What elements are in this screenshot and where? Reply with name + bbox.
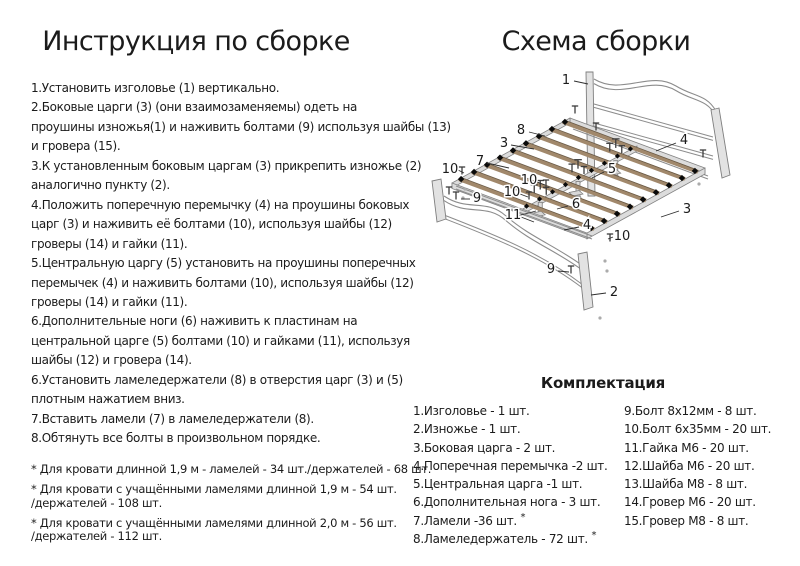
parts-item: 2.Изножье - 1 шт. bbox=[413, 420, 608, 438]
instruction-line: плотным нажатием вниз. bbox=[31, 390, 451, 409]
instruction-line: 8.Обтянуть все болты в произвольном поря… bbox=[31, 429, 451, 448]
instruction-line: 1.Установить изголовье (1) вертикально. bbox=[31, 79, 451, 98]
footboard-right-post bbox=[578, 252, 593, 310]
parts-item: 5.Центральная царга -1 шт. bbox=[413, 475, 608, 493]
footnote-line: /держателей - 108 шт. bbox=[31, 497, 431, 511]
callout-label: 11 bbox=[505, 208, 522, 223]
headboard-top-rail bbox=[594, 84, 716, 116]
footnote-line: * Для кровати с учащёнными ламелями длин… bbox=[31, 517, 431, 531]
footnote: * Для кровати с учащёнными ламелями длин… bbox=[31, 517, 431, 544]
parts-item: 4.Поперечная перемычка -2 шт. bbox=[413, 457, 608, 475]
instruction-line: шайбы (12) и гровера (14). bbox=[31, 351, 451, 370]
instructions-list: 1.Установить изголовье (1) вертикально.2… bbox=[31, 79, 451, 449]
footnotes: * Для кровати длинной 1,9 м - ламелей - … bbox=[31, 463, 431, 550]
callout-label: 4 bbox=[583, 218, 591, 233]
headboard-right-post bbox=[711, 108, 730, 178]
hole-dot bbox=[603, 259, 606, 262]
instruction-line: гроверы (14) и гайки (11). bbox=[31, 293, 451, 312]
callout-label: 4 bbox=[680, 133, 688, 148]
assembly-instruction-sheet: Инструкция по сборке Схема сборки 1.Уста… bbox=[0, 0, 800, 566]
headboard-top-rail bbox=[594, 79, 716, 111]
callout-label: 9 bbox=[473, 191, 481, 206]
instruction-line: царг (3) и наживить её болтами (10), исп… bbox=[31, 215, 451, 234]
hole-dot bbox=[463, 187, 466, 190]
callout-label: 9 bbox=[547, 262, 555, 277]
instruction-line: центральной царге (5) болтами (10) и гай… bbox=[31, 332, 451, 351]
parts-list-col1: 1.Изголовье - 1 шт.2.Изножье - 1 шт.3.Бо… bbox=[413, 402, 608, 548]
instruction-line: 3.К установленным боковым царгам (3) при… bbox=[31, 157, 451, 176]
bed-assembly-diagram: 1837105410109611431092 bbox=[420, 55, 800, 347]
footnote-line: * Для кровати длинной 1,9 м - ламелей - … bbox=[31, 463, 431, 477]
instruction-line: и гровера (15). bbox=[31, 137, 451, 156]
instruction-line: 6.Дополнительные ноги (6) наживить к пла… bbox=[31, 312, 451, 331]
callout-leader bbox=[591, 293, 606, 295]
callout-leader bbox=[458, 170, 464, 173]
callout-label: 10 bbox=[442, 162, 459, 177]
parts-item: 11.Гайка М6 - 20 шт. bbox=[624, 439, 771, 457]
instruction-line: гроверы (14) и гайки (11). bbox=[31, 235, 451, 254]
footnote: * Для кровати длинной 1,9 м - ламелей - … bbox=[31, 463, 431, 477]
instruction-line: 6.Установить ламеледержатели (8) в отвер… bbox=[31, 371, 451, 390]
footnote-line: /держателей - 112 шт. bbox=[31, 530, 431, 544]
callout-label: 10 bbox=[521, 173, 538, 188]
parts-item: 12.Шайба М6 - 20 шт. bbox=[624, 457, 771, 475]
headboard-rail bbox=[594, 104, 713, 137]
footnote-star: * bbox=[591, 530, 596, 541]
callout-label: 3 bbox=[683, 202, 691, 217]
parts-item: 6.Дополнительная нога - 3 шт. bbox=[413, 493, 608, 511]
parts-item: 9.Болт 8х12мм - 8 шт. bbox=[624, 402, 771, 420]
instruction-line: аналогично пункту (2). bbox=[31, 176, 451, 195]
footnote-star: * bbox=[520, 512, 525, 523]
callout-label: 3 bbox=[500, 136, 508, 151]
callout-label: 10 bbox=[614, 229, 631, 244]
parts-item: 13.Шайба М8 - 8 шт. bbox=[624, 475, 771, 493]
parts-item: 3.Боковая царга - 2 шт. bbox=[413, 439, 608, 457]
parts-title: Комплектация bbox=[420, 374, 786, 392]
callout-label: 8 bbox=[517, 123, 525, 138]
callout-label: 2 bbox=[610, 285, 618, 300]
footnote: * Для кровати с учащёнными ламелями длин… bbox=[31, 483, 431, 510]
footnote-line: * Для кровати с учащёнными ламелями длин… bbox=[31, 483, 431, 497]
schema-title: Схема сборки bbox=[406, 26, 786, 57]
instruction-line: проушины изножья(1) и наживить болтами (… bbox=[31, 118, 451, 137]
instructions-title: Инструкция по сборке bbox=[0, 26, 392, 57]
parts-list-col2: 9.Болт 8х12мм - 8 шт.10.Болт 6х35мм - 20… bbox=[624, 402, 771, 530]
callout-leader bbox=[520, 194, 528, 197]
callout-label: 1 bbox=[562, 73, 570, 88]
hole-dot bbox=[605, 269, 608, 272]
instruction-line: 5.Центральную царгу (5) установить на пр… bbox=[31, 254, 451, 273]
parts-item: 15.Гровер М8 - 8 шт. bbox=[624, 512, 771, 530]
hole-dot bbox=[598, 316, 601, 319]
instruction-line: перемычек (4) и наживить болтами (10), и… bbox=[31, 274, 451, 293]
hole-dot bbox=[697, 182, 700, 185]
callout-leader bbox=[661, 211, 679, 217]
instruction-line: 7.Вставить ламели (7) в ламеледержатели … bbox=[31, 410, 451, 429]
instruction-line: 2.Боковые царги (3) (они взаимозаменяемы… bbox=[31, 98, 451, 117]
footboard-left-post bbox=[432, 179, 446, 222]
callout-label: 5 bbox=[608, 162, 616, 177]
parts-item: 10.Болт 6х35мм - 20 шт. bbox=[624, 420, 771, 438]
callout-label: 7 bbox=[476, 154, 484, 169]
instruction-line: 4.Положить поперечную перемычку (4) на п… bbox=[31, 196, 451, 215]
callout-label: 10 bbox=[504, 185, 521, 200]
callout-label: 6 bbox=[572, 197, 580, 212]
parts-item: 1.Изголовье - 1 шт. bbox=[413, 402, 608, 420]
parts-item: 7.Ламели -36 шт. * bbox=[413, 512, 608, 530]
parts-item: 14.Гровер М6 - 20 шт. bbox=[624, 493, 771, 511]
parts-item: 8.Ламеледержатель - 72 шт. * bbox=[413, 530, 608, 548]
